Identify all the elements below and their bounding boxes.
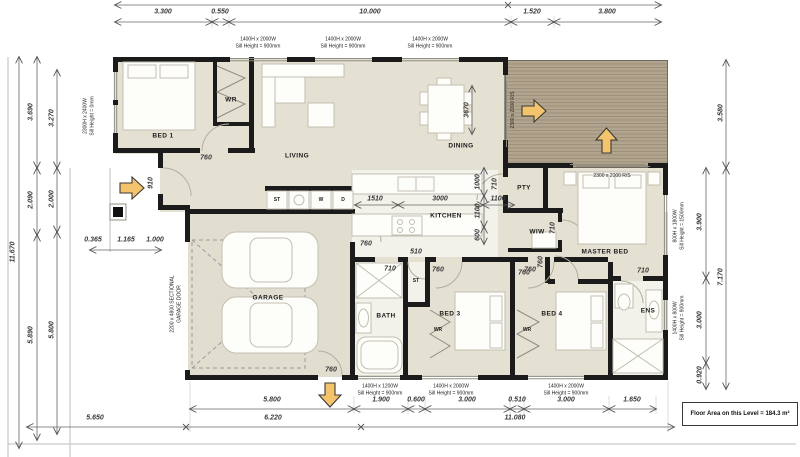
window-sill: Sill Height = 900mm [321,43,366,50]
dim-kitchen-1100b: 1100 [475,203,482,218]
dim-bottom1-4: 3.000 [458,397,476,404]
dim-entry-1: 0.365 [84,237,102,244]
fixtures [123,62,663,373]
dim-entry-door: 910 [148,177,155,189]
dim-left-outer: 11.670 [10,242,17,263]
dim-store-door: 510 [410,249,422,256]
door-size: 2300 x 2000 R/S [593,173,630,180]
dim-bottom2-1: 5.650 [86,415,104,422]
door-label-garage-door: 2200 x 4800 SECTIONAL GARAGE DOOR [170,275,183,332]
dim-hall-door: 760 [360,241,372,248]
dim-ens-door: 710 [637,268,649,275]
room-label-ens: ENS [641,308,656,315]
window-size: 1400H x 2000W [429,384,474,391]
floor-area-box: Floor Area on this Level = 184.3 m² [682,402,798,426]
window-sill: Sill Height = 900mm [429,390,474,397]
window-size: 1400H x 2000W [321,37,366,44]
room-label-washer: W [319,197,324,203]
window-sill: Sill Height = 0mm [89,96,96,135]
dim-left-mid-1: 3.690 [28,103,35,121]
dim-right-outer-1: 3.580 [718,104,725,122]
room-label-hall-store: ST [413,278,419,284]
dim-right-inner-1: 3.900 [697,213,704,231]
dim-right-inner-2: 3.000 [697,311,704,329]
dim-top-4: 1.520 [523,9,541,16]
dim-bottom2-2: 6.220 [264,415,282,422]
dim-right-inner-3: 0.920 [697,366,704,384]
room-label-bed3: BED 3 [439,311,460,318]
garage-rear-arrow-icon [319,383,341,407]
dim-pantry-door: 710 [492,178,499,190]
dim-dining-table: 3670 [464,102,471,118]
porch-post [110,204,126,220]
dim-bottom1-5: 0.510 [508,397,526,404]
dim-right-outer-2: 7.170 [718,268,725,286]
dim-bottom2-3: 11.080 [505,415,526,422]
dim-wiw-door: 710 [550,222,557,234]
window-sill: Sill Height = 900mm [408,43,453,50]
deck-up-arrow-icon [596,128,617,153]
window-sill: Sill Height = 1500mm [679,202,686,250]
window-size: 1400H x 2000W [408,37,453,44]
dim-kitchen-1510: 1510 [367,196,383,203]
floor-area-text: Floor Area on this Level = 184.3 m² [691,411,790,417]
room-label-garage: GARAGE [253,295,284,302]
dim-bed3-door: 760 [432,267,444,274]
dim-bottom1-2: 1.900 [372,397,390,404]
dim-top-2: 0.550 [211,9,229,16]
window-label-ens: 1400H x 800W Sill Height = 900mm [673,296,686,341]
dim-kitchen-1000: 1000 [475,174,482,190]
dim-kitchen-600: 600 [475,229,482,241]
dim-bed1-door: 760 [200,155,212,162]
room-label-dryer: D [341,197,345,203]
door-label-deck-slider-front: 2300 x 2000 R/S [593,173,630,180]
room-label-bed4: BED 4 [541,311,562,318]
dim-master-door-a: 760 [538,256,545,268]
window-label-top1: 1400H x 2000W Sill Height = 900mm [236,37,281,50]
dim-bottom1-7: 1.650 [623,397,641,404]
window-size: 1400H x 1200W [358,384,403,391]
dim-left-inner-1: 3.270 [49,109,56,127]
dim-top-3: 10.000 [359,9,380,16]
floor-plan: 3.300 0.550 10.000 1.520 3.800 5.800 1.9… [0,0,800,457]
dim-top-5: 3.800 [598,9,616,16]
room-label-living: LIVING [285,153,309,160]
dim-bath-door: 710 [384,266,396,273]
room-label-wr4: WR [523,327,531,333]
room-label-pantry: PTY [517,185,531,192]
door-label-deck-slider-side: 2300 x 2000 R/S [510,91,517,128]
window-label-top3: 1400H x 2000W Sill Height = 900mm [408,37,453,50]
dim-bed4-door: 760 [524,267,536,274]
window-size: 1400H x 2000W [236,37,281,44]
room-label-kitchen: KITCHEN [430,213,462,220]
dim-kitchen-1100a: 1100 [490,196,505,203]
room-label-wr1: WR [225,97,237,104]
dim-bottom1-3: 0.600 [407,397,425,404]
dim-entry-3: 1.000 [146,237,164,244]
dim-left-mid-3: 5.890 [28,326,35,344]
dim-left-inner-3: 5.800 [49,321,56,339]
dim-top-1: 3.300 [154,9,172,16]
window-label-bed4: 1400H x 2000W Sill Height = 900mm [544,384,589,397]
window-label-bath: 1400H x 1200W Sill Height = 900mm [358,384,403,397]
dim-entry-2: 1.165 [117,237,135,244]
dim-bottom1-6: 3.000 [557,397,575,404]
room-label-dining: DINING [448,143,473,150]
room-label-wiw: WIW [529,229,544,236]
window-sill: Sill Height = 900mm [358,390,403,397]
dim-left-inner-2: 2.000 [49,190,56,208]
door-size: GARAGE DOOR [176,275,183,332]
window-label-top2: 1400H x 2000W Sill Height = 900mm [321,37,366,50]
dim-left-mid-2: 2.090 [28,191,35,209]
window-size: 1400H x 800W [673,296,680,341]
room-label-wr3: WR [434,327,442,333]
window-label-bed3: 1400H x 2000W Sill Height = 900mm [429,384,474,397]
deck-side-arrow-icon [522,100,546,122]
window-sill: Sill Height = 900mm [679,296,686,341]
window-size: 2300H x 2400W [83,96,90,135]
window-sill: Sill Height = 900mm [236,43,281,50]
room-label-master: MASTER BED [582,249,629,256]
window-label-master: 800H x 1800W Sill Height = 1500mm [673,202,686,250]
dim-bottom1-1: 5.800 [263,397,281,404]
room-label-bed1: BED 1 [152,133,173,140]
room-label-bath: BATH [376,313,395,320]
window-sill: Sill Height = 900mm [544,390,589,397]
room-label-laundry-store: ST [274,197,280,203]
window-size: 1400H x 2000W [544,384,589,391]
entry-arrow-icon [120,177,144,199]
door-size: 2300 x 2000 R/S [510,91,517,128]
dim-garage-rear-door: 760 [325,367,337,374]
door-size: 2200 x 4800 SECTIONAL [170,275,177,332]
window-label-bed1: 2300H x 2400W Sill Height = 0mm [83,96,96,135]
dim-kitchen-3000: 3000 [432,196,448,203]
